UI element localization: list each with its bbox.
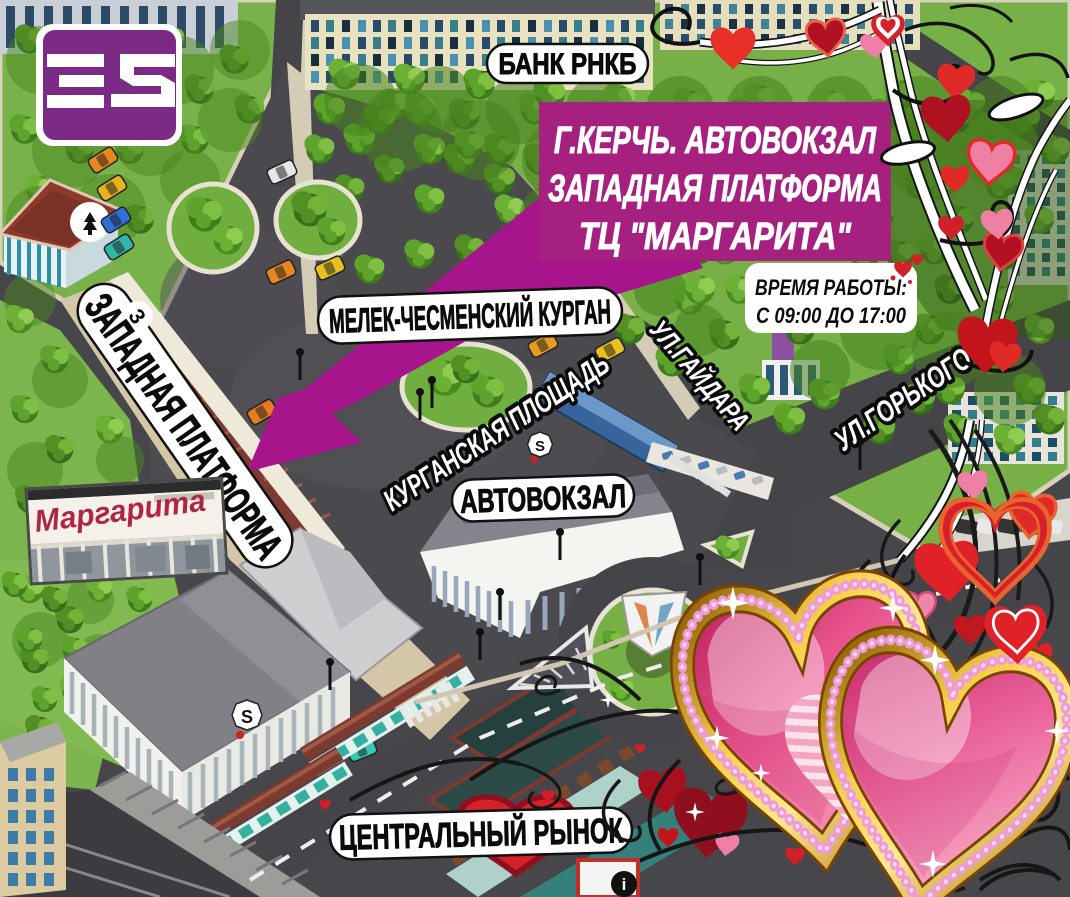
svg-text:i: i [622, 875, 627, 894]
svg-text:ЦЕНТРАЛЬНЫЙ РЫНОК: ЦЕНТРАЛЬНЫЙ РЫНОК [339, 810, 624, 857]
svg-text:БАНК РНКБ: БАНК РНКБ [499, 48, 637, 81]
svg-text:S: S [241, 707, 253, 727]
svg-text:С 09:00 ДО 17:00: С 09:00 ДО 17:00 [756, 303, 907, 328]
svg-text:S: S [535, 438, 545, 455]
svg-text:ЗАПАДНАЯ ПЛАТФОРМА: ЗАПАДНАЯ ПЛАТФОРМА [548, 168, 882, 210]
svg-text:ВРЕМЯ РАБОТЫ:: ВРЕМЯ РАБОТЫ: [755, 275, 907, 300]
svg-text:ТЦ "МАРГАРИТА": ТЦ "МАРГАРИТА" [579, 216, 852, 258]
svg-text:АВТОВОКЗАЛ: АВТОВОКЗАЛ [459, 477, 626, 520]
svg-text:Г.КЕРЧЬ. АВТОВОКЗАЛ: Г.КЕРЧЬ. АВТОВОКЗАЛ [554, 120, 877, 162]
